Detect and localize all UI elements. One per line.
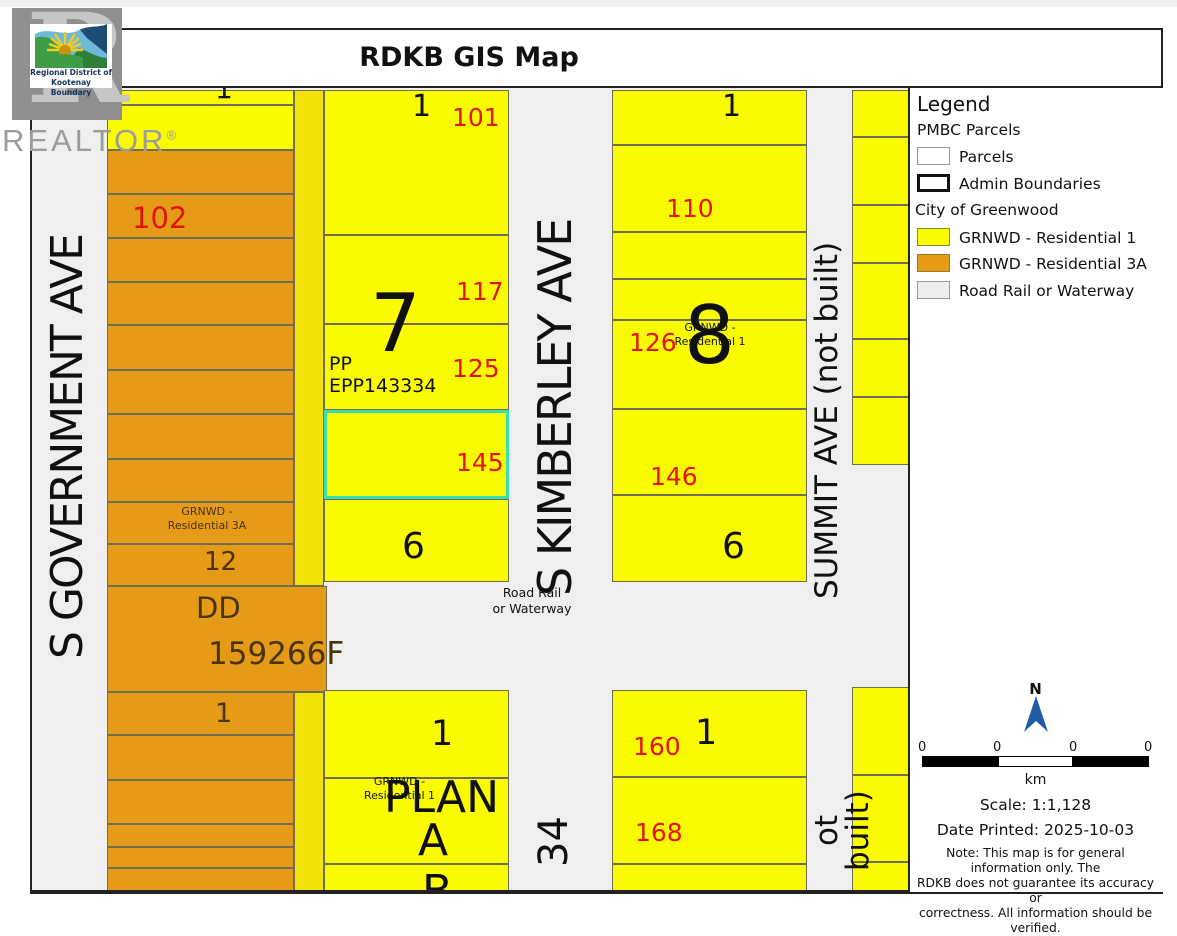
parcel-number-160: 160 — [633, 734, 681, 759]
block-number-1-northwest: 1 — [215, 86, 233, 103]
legend-item-label: Admin Boundaries — [959, 175, 1101, 193]
block-number-1-southeast: 1 — [695, 716, 717, 751]
block-number-8: 8 — [684, 296, 735, 376]
street-label-s-kimberley-ave: S KIMBERLEY AVE — [532, 188, 578, 628]
parcel — [612, 864, 807, 892]
legend-group-pmbc: PMBC Parcels — [917, 121, 1020, 139]
parcel-number-117: 117 — [456, 279, 504, 304]
scale-tick: 0 — [918, 740, 926, 755]
block-number-34: 34 — [534, 806, 574, 878]
parcel — [324, 864, 509, 892]
zoning-res3a-line2: Residential 3A — [168, 519, 247, 532]
parcel-number-110: 110 — [666, 196, 714, 221]
road-rail-waterway-swatch — [917, 281, 950, 299]
plan-number-159266f: 159266F — [208, 639, 344, 670]
road-rail-waterway-label: Road Rail or Waterway — [472, 585, 592, 616]
lane-parcel — [294, 692, 324, 892]
parcel-1-orange — [107, 692, 294, 735]
street-label-summit-ave: SUMMIT AVE (not built) — [812, 130, 843, 710]
map-canvas: S GOVERNMENT AVE S KIMBERLEY AVE 34 SUMM… — [30, 86, 910, 892]
parcel-number-102: 102 — [132, 204, 187, 233]
parcel — [852, 263, 910, 339]
parcel — [852, 90, 910, 137]
date-printed-text: Date Printed: 2025-10-03 — [908, 821, 1163, 839]
scale-panel: N 0 0 0 0 km Scale: 1:1,128 Date Printed… — [908, 670, 1163, 890]
scale-tick: 0 — [1144, 740, 1152, 755]
parcel-number-145: 145 — [456, 450, 504, 475]
block-number-1-southwest: 1 — [431, 717, 453, 752]
legend-item-label: Road Rail or Waterway — [959, 282, 1134, 300]
legend-item-label: GRNWD - Residential 3A — [959, 255, 1147, 273]
parcel — [852, 205, 910, 263]
legend-item-label: GRNWD - Residential 1 — [959, 229, 1136, 247]
legend-heading: Legend — [917, 92, 990, 116]
block-number-6-west: 6 — [402, 529, 425, 565]
rdkb-logo-graphic — [35, 24, 107, 68]
parcel — [107, 325, 294, 370]
scale-bar-segment — [1073, 756, 1149, 767]
parcel — [107, 847, 294, 868]
logo-text-line1: Regional District of — [30, 68, 112, 77]
parcel — [107, 90, 294, 105]
scale-unit: km — [908, 772, 1163, 788]
parcel — [107, 414, 294, 459]
north-arrow-icon — [1018, 696, 1054, 734]
parcel-number-101: 101 — [452, 105, 500, 130]
plan-label-pp: PP — [329, 355, 352, 374]
block-number-1-orange: 1 — [215, 700, 232, 727]
parcel — [107, 868, 294, 892]
rdkb-logo-text: Regional District of Kootenay Boundary — [30, 68, 112, 97]
parcel-6-east — [612, 495, 807, 582]
scale-bar-segment — [998, 756, 1073, 767]
legend-item-label: Parcels — [959, 148, 1014, 166]
scale-ratio-text: Scale: 1:1,128 — [908, 796, 1163, 814]
block-number-1-block7: 1 — [412, 92, 431, 122]
plan-label-b-clipped: B — [422, 870, 452, 892]
parcel — [107, 370, 294, 414]
zoning-label-res3a: GRNWD - Residential 3A — [147, 505, 267, 533]
plan-label-dd: DD — [196, 594, 241, 623]
scale-bar-segment — [922, 756, 998, 767]
note-line: Note: This map is for general informatio… — [946, 846, 1125, 875]
parcel-12 — [107, 544, 294, 586]
parcel — [612, 90, 807, 145]
note-line: RDKB does not guarantee its accuracy or — [917, 876, 1154, 905]
block-number-1-block8: 1 — [722, 92, 741, 122]
parcel — [107, 780, 294, 824]
admin-boundaries-swatch — [917, 174, 950, 192]
scale-bar: 0 0 0 0 — [922, 756, 1149, 768]
disclaimer-note: Note: This map is for general informatio… — [912, 846, 1159, 936]
block-number-7: 7 — [370, 284, 421, 364]
parcel-number-168: 168 — [635, 820, 683, 845]
realtor-word: REALTOR — [2, 123, 167, 158]
block-number-12: 12 — [204, 549, 237, 575]
scale-tick: 0 — [993, 740, 1001, 755]
page-title: RDKB GIS Map — [30, 42, 908, 73]
parcel-146 — [612, 409, 807, 495]
lane-parcel — [294, 90, 324, 586]
note-line: correctness. All information should be v… — [919, 906, 1152, 935]
plan-label-epp143334: EPP143334 — [329, 377, 436, 396]
residential-1-swatch — [917, 228, 950, 246]
parcel — [107, 238, 294, 282]
rdkb-logo: Regional District of Kootenay Boundary — [30, 24, 112, 88]
scale-tick: 0 — [1069, 740, 1077, 755]
street-label-summit-ave-lower-clipped: ot built) — [812, 778, 874, 883]
legend-group-city: City of Greenwood — [915, 201, 1059, 219]
block-number-6-east: 6 — [722, 529, 745, 565]
parcel — [107, 459, 294, 502]
parcel — [852, 137, 910, 205]
plan-label-a: A — [418, 819, 448, 863]
parcel — [852, 397, 910, 465]
parcel — [107, 282, 294, 325]
street-label-s-government-ave: S GOVERNMENT AVE — [46, 200, 90, 695]
logo-text-line2: Kootenay Boundary — [51, 78, 92, 97]
parcel-1-southwest — [324, 690, 509, 778]
parcel — [107, 735, 294, 780]
parcel — [107, 824, 294, 847]
parcels-swatch — [917, 147, 950, 165]
parcel — [612, 232, 807, 279]
residential-3a-swatch — [917, 254, 950, 272]
road-label-line2: or Waterway — [493, 601, 572, 616]
parcel-number-146: 146 — [650, 464, 698, 489]
registered-mark: ® — [167, 128, 177, 143]
realtor-watermark-text: REALTOR® — [2, 123, 176, 159]
plan-label-plan: PLAN — [384, 776, 499, 820]
parcel-number-125: 125 — [452, 356, 500, 381]
road-label-line1: Road Rail — [503, 585, 561, 600]
window-top-strip — [0, 0, 1177, 7]
parcel — [852, 687, 910, 775]
zoning-res3a-line1: GRNWD - — [181, 505, 232, 518]
parcel — [852, 339, 910, 397]
parcel-number-126: 126 — [629, 330, 677, 355]
